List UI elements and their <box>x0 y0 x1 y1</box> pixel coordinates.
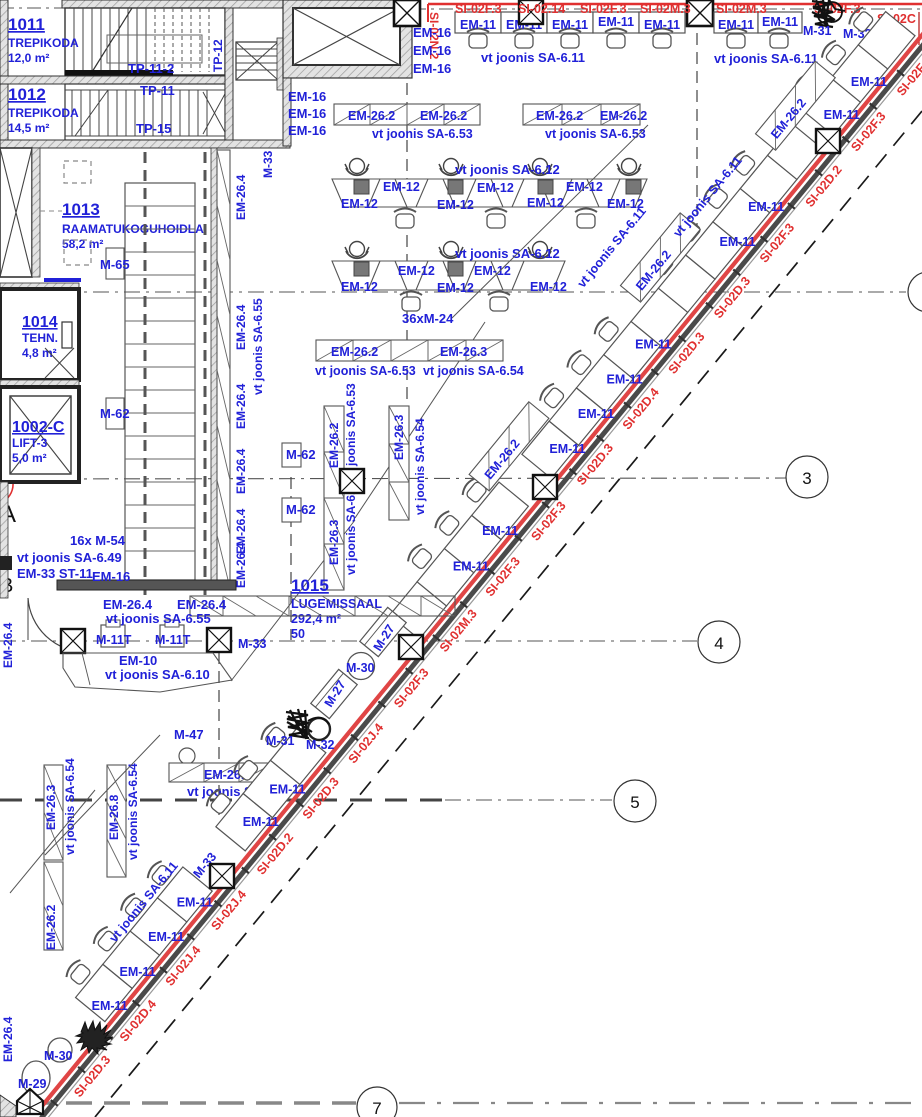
svg-text:EM-12: EM-12 <box>437 281 474 295</box>
svg-text:EM-11: EM-11 <box>718 18 754 32</box>
svg-text:vt joonis SA-6.12: vt joonis SA-6.12 <box>455 162 560 177</box>
svg-text:M-62: M-62 <box>100 406 130 421</box>
svg-text:EM-16: EM-16 <box>288 123 326 138</box>
svg-text:4: 4 <box>714 634 723 653</box>
svg-text:4,8 m²: 4,8 m² <box>22 346 57 360</box>
svg-text:EM-33 ST-11: EM-33 ST-11 <box>17 566 93 581</box>
svg-text:EM-26.4: EM-26.4 <box>1 1016 15 1062</box>
svg-text:EM-26.2: EM-26.2 <box>348 109 395 123</box>
svg-text:14,5 m²: 14,5 m² <box>8 121 49 135</box>
svg-text:vt joonis SA-6.11: vt joonis SA-6.11 <box>714 51 818 66</box>
svg-text:EM-26.3: EM-26.3 <box>392 414 406 460</box>
svg-text:1002-C: 1002-C <box>12 419 65 436</box>
svg-text:vt joonis SA-6.54: vt joonis SA-6.54 <box>126 763 140 860</box>
svg-text:M-47: M-47 <box>174 727 204 742</box>
svg-text:TREPIKODA: TREPIKODA <box>8 106 79 120</box>
svg-text:EM-11: EM-11 <box>552 18 588 32</box>
svg-text:EM-11: EM-11 <box>460 18 496 32</box>
svg-text:1013: 1013 <box>62 200 100 219</box>
svg-text:M-11T: M-11T <box>155 633 191 647</box>
svg-text:50: 50 <box>291 627 305 641</box>
svg-text:EM-26.2: EM-26.2 <box>600 109 647 123</box>
svg-text:5,0 m²: 5,0 m² <box>12 451 47 465</box>
svg-text:EM-16: EM-16 <box>92 569 130 584</box>
svg-text:EM-12: EM-12 <box>398 264 435 278</box>
svg-text:EM-12: EM-12 <box>341 197 378 211</box>
svg-text:EM-26.4: EM-26.4 <box>234 304 248 350</box>
svg-text:vt joonis SA-6.53: vt joonis SA-6.53 <box>344 383 358 480</box>
svg-text:EM-26.2: EM-26.2 <box>536 109 583 123</box>
svg-text:vt joonis SA-6.5: vt joonis SA-6.5 <box>344 485 358 575</box>
svg-text:EM-11: EM-11 <box>148 930 184 944</box>
svg-text:vt joonis SA-6.54: vt joonis SA-6.54 <box>63 758 77 855</box>
svg-text:EM-11: EM-11 <box>453 559 489 573</box>
svg-text:EM-26.2: EM-26.2 <box>327 422 341 468</box>
svg-text:vt joonis SA-6.53: vt joonis SA-6.53 <box>315 364 416 378</box>
svg-text:SI-02F.3: SI-02F.3 <box>580 2 627 16</box>
svg-text:1012: 1012 <box>8 85 46 104</box>
svg-text:vt joonis SA-6.10: vt joonis SA-6.10 <box>105 667 210 682</box>
svg-text:EM-11: EM-11 <box>606 372 642 386</box>
svg-text:EM-11: EM-11 <box>748 200 784 214</box>
svg-text:SI-02M.3: SI-02M.3 <box>716 2 767 16</box>
svg-text:SI-02M.3: SI-02M.3 <box>640 2 691 16</box>
svg-text:M-62: M-62 <box>286 447 316 462</box>
svg-text:M-33: M-33 <box>261 150 275 178</box>
svg-text:EM-26.3: EM-26.3 <box>440 345 487 359</box>
svg-text:M-29: M-29 <box>18 1077 47 1091</box>
svg-text:EM-11: EM-11 <box>720 235 756 249</box>
svg-text:EM-16: EM-16 <box>288 106 326 121</box>
svg-text:EM-16: EM-16 <box>413 25 451 40</box>
svg-text:EM-26.4: EM-26.4 <box>234 383 248 429</box>
svg-text:vt joonis SA-6.55: vt joonis SA-6.55 <box>106 611 211 626</box>
svg-text:1011: 1011 <box>8 15 45 34</box>
svg-text:EM-26.4: EM-26.4 <box>234 174 248 220</box>
svg-text:vt joonis SA-6.54: vt joonis SA-6.54 <box>413 418 427 515</box>
svg-text:EM-26.8: EM-26.8 <box>107 794 121 840</box>
svg-text:EM-26.2: EM-26.2 <box>420 109 467 123</box>
svg-text:vt joonis SA-6.11: vt joonis SA-6.11 <box>481 50 585 65</box>
svg-text:TREPIKODA: TREPIKODA <box>8 36 79 50</box>
svg-text:EM-11: EM-11 <box>851 75 887 89</box>
svg-text:TP-11: TP-11 <box>140 83 175 98</box>
svg-text:EM-11: EM-11 <box>635 338 671 352</box>
svg-text:LIFT-3: LIFT-3 <box>12 436 48 450</box>
svg-text:EM-11: EM-11 <box>644 18 680 32</box>
svg-text:EM-26.2: EM-26.2 <box>331 345 378 359</box>
svg-text:TEHN.: TEHN. <box>22 331 58 345</box>
svg-text:5: 5 <box>630 793 639 812</box>
svg-text:vt joonis SA-6.53: vt joonis SA-6.53 <box>545 127 646 141</box>
svg-text:TP-15: TP-15 <box>136 121 171 136</box>
svg-text:EM-16: EM-16 <box>413 61 451 76</box>
svg-text:M-30: M-30 <box>44 1049 73 1063</box>
svg-text:EM-16: EM-16 <box>288 89 326 104</box>
svg-text:EM-11: EM-11 <box>482 524 518 538</box>
svg-text:1014: 1014 <box>22 314 58 331</box>
svg-text:36xM-24: 36xM-24 <box>402 311 454 326</box>
svg-text:EM-12: EM-12 <box>527 196 564 210</box>
svg-text:SI-02F.3: SI-02F.3 <box>455 2 502 16</box>
svg-text:EM-11: EM-11 <box>598 15 634 29</box>
svg-text:EM-12: EM-12 <box>383 180 420 194</box>
svg-text:EM-16: EM-16 <box>413 43 451 58</box>
svg-text:M-32: M-32 <box>306 738 335 752</box>
svg-text:M-30: M-30 <box>346 661 375 675</box>
svg-text:EM-11: EM-11 <box>549 442 585 456</box>
svg-text:EM-11: EM-11 <box>177 895 213 909</box>
svg-text:EM-12: EM-12 <box>530 280 567 294</box>
svg-text:EM-11: EM-11 <box>243 815 279 829</box>
svg-text:EM-12: EM-12 <box>341 280 378 294</box>
svg-text:M-31: M-31 <box>803 24 832 38</box>
svg-text:EM-11: EM-11 <box>824 108 860 122</box>
svg-text:EM-12: EM-12 <box>437 198 474 212</box>
svg-text:7: 7 <box>372 1099 381 1117</box>
svg-text:EM-26.4: EM-26.4 <box>1 622 15 668</box>
svg-text:292,4 m²: 292,4 m² <box>291 612 341 626</box>
svg-text:vt joonis SA-6.12: vt joonis SA-6.12 <box>455 246 560 261</box>
svg-text:3: 3 <box>802 469 811 488</box>
svg-text:M-11T: M-11T <box>96 633 132 647</box>
svg-text:vt joonis SA-6.53: vt joonis SA-6.53 <box>372 127 473 141</box>
svg-text:EM-26.4: EM-26.4 <box>103 597 153 612</box>
svg-text:M-65: M-65 <box>100 257 130 272</box>
svg-text:58,2 m²: 58,2 m² <box>62 237 103 251</box>
svg-text:M-62: M-62 <box>286 502 316 517</box>
svg-text:1015: 1015 <box>291 576 329 595</box>
svg-text:EM-11: EM-11 <box>269 783 305 797</box>
svg-text:12,0 m²: 12,0 m² <box>8 51 49 65</box>
svg-text:EM-26.3: EM-26.3 <box>44 784 58 830</box>
svg-text:M-31: M-31 <box>266 734 295 748</box>
svg-text:TP-12: TP-12 <box>211 39 225 72</box>
svg-text:TP-11-2: TP-11-2 <box>128 61 174 76</box>
svg-text:EM-26.4: EM-26.4 <box>177 597 227 612</box>
svg-text:SI-02.14: SI-02.14 <box>518 2 565 16</box>
svg-text:EM-11: EM-11 <box>762 15 798 29</box>
svg-text:EM-11: EM-11 <box>92 999 128 1013</box>
svg-text:EM-26.2: EM-26.2 <box>44 904 58 950</box>
svg-text:16x M-54: 16x M-54 <box>70 533 126 548</box>
svg-text:EM-11: EM-11 <box>120 965 156 979</box>
svg-text:EM-11: EM-11 <box>578 407 614 421</box>
svg-text:EM-12: EM-12 <box>477 181 514 195</box>
svg-text:EM-10: EM-10 <box>119 653 157 668</box>
svg-text:EM-26.3: EM-26.3 <box>327 519 341 565</box>
svg-text:EM-26.4: EM-26.4 <box>234 448 248 494</box>
svg-text:vt joonis SA-6.49: vt joonis SA-6.49 <box>17 550 122 565</box>
svg-text:vt joonis SA-6.54: vt joonis SA-6.54 <box>423 364 524 378</box>
svg-text:M-33: M-33 <box>238 637 267 651</box>
svg-text:vt joonis SA-6.55: vt joonis SA-6.55 <box>251 298 265 395</box>
